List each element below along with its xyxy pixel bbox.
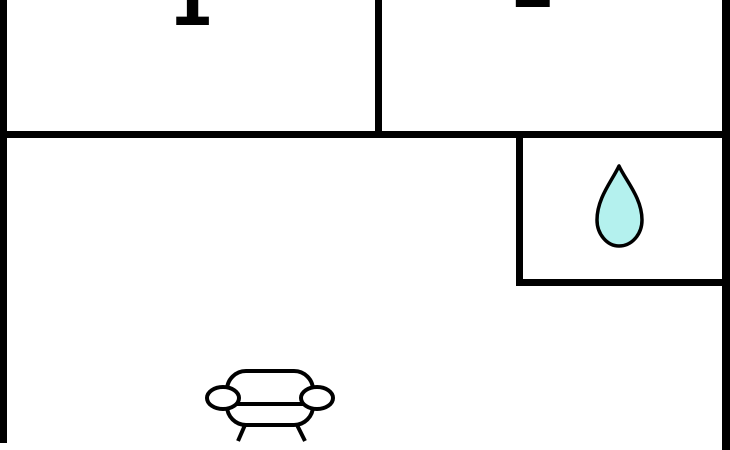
bathroom-wall-bottom xyxy=(516,279,730,286)
floorplan-canvas: 1 2 xyxy=(0,0,730,450)
sofa-leg-left xyxy=(238,425,245,441)
sofa-leg-right xyxy=(297,425,305,441)
sofa-armrest-left xyxy=(207,387,239,409)
outer-wall-right xyxy=(722,0,730,450)
sofa-armrest-right xyxy=(301,387,333,409)
outer-wall-left xyxy=(0,0,7,443)
wall-horizontal-main xyxy=(0,131,730,138)
water-drop-icon xyxy=(597,166,642,246)
bathroom-wall-left xyxy=(516,131,523,286)
wall-room-divider xyxy=(375,0,382,138)
room-1-label: 1 xyxy=(169,0,214,41)
room-2-label: 2 xyxy=(511,0,556,23)
floorplan: 1 2 xyxy=(0,0,730,450)
sofa-icon xyxy=(207,371,333,441)
drop-shape xyxy=(597,166,642,246)
